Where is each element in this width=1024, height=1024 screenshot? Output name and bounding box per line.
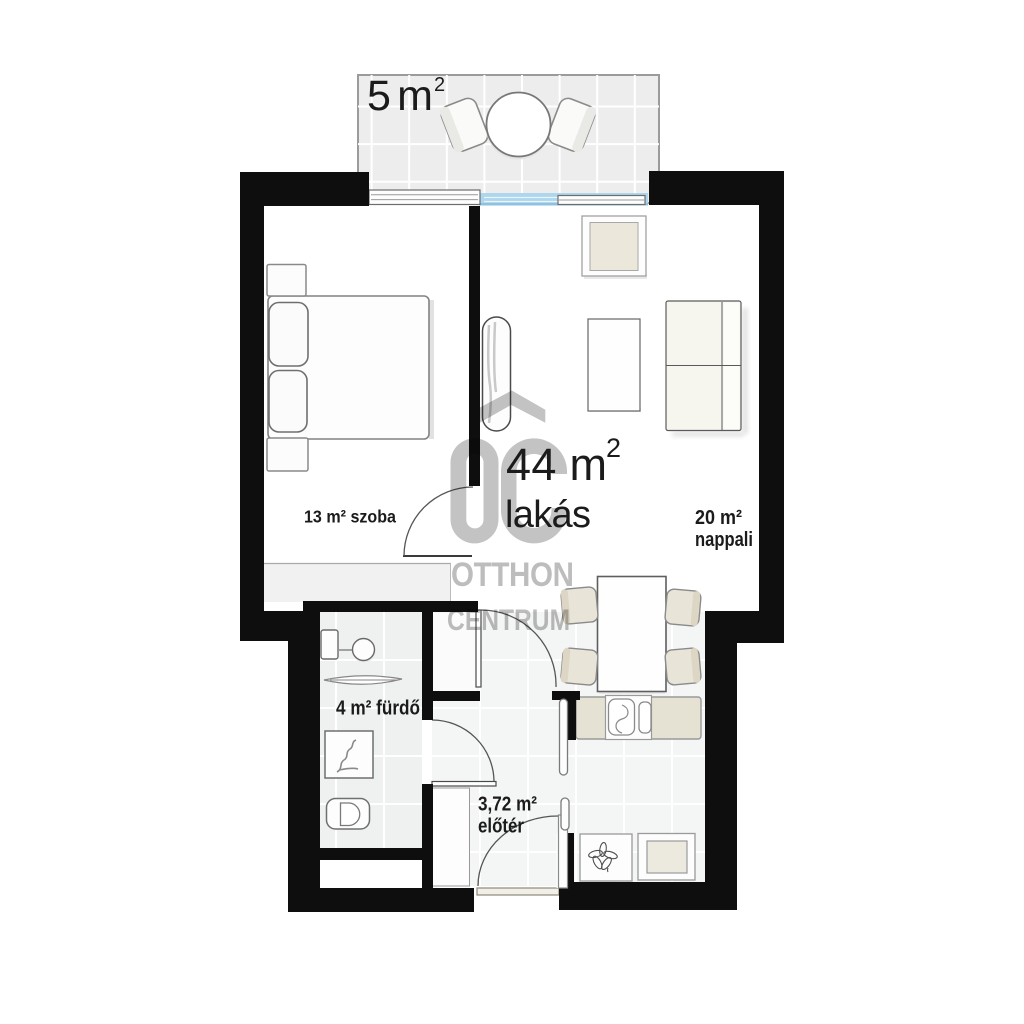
svg-text:44 m: 44 m [506, 439, 607, 490]
svg-text:OTTHON: OTTHON [451, 555, 574, 594]
svg-text:4 m² fürdő: 4 m² fürdő [336, 698, 420, 720]
svg-text:előtér: előtér [478, 816, 524, 838]
svg-text:lakás: lakás [505, 494, 591, 536]
svg-text:3,72 m²: 3,72 m² [478, 794, 537, 816]
svg-text:2: 2 [606, 433, 621, 463]
svg-text:2: 2 [434, 74, 445, 96]
svg-text:13 m² szoba: 13 m² szoba [304, 507, 396, 527]
svg-text:CENTRUM: CENTRUM [447, 603, 570, 637]
svg-text:5 m: 5 m [367, 72, 433, 120]
svg-text:20 m²: 20 m² [695, 507, 742, 529]
svg-text:nappali: nappali [695, 529, 753, 551]
